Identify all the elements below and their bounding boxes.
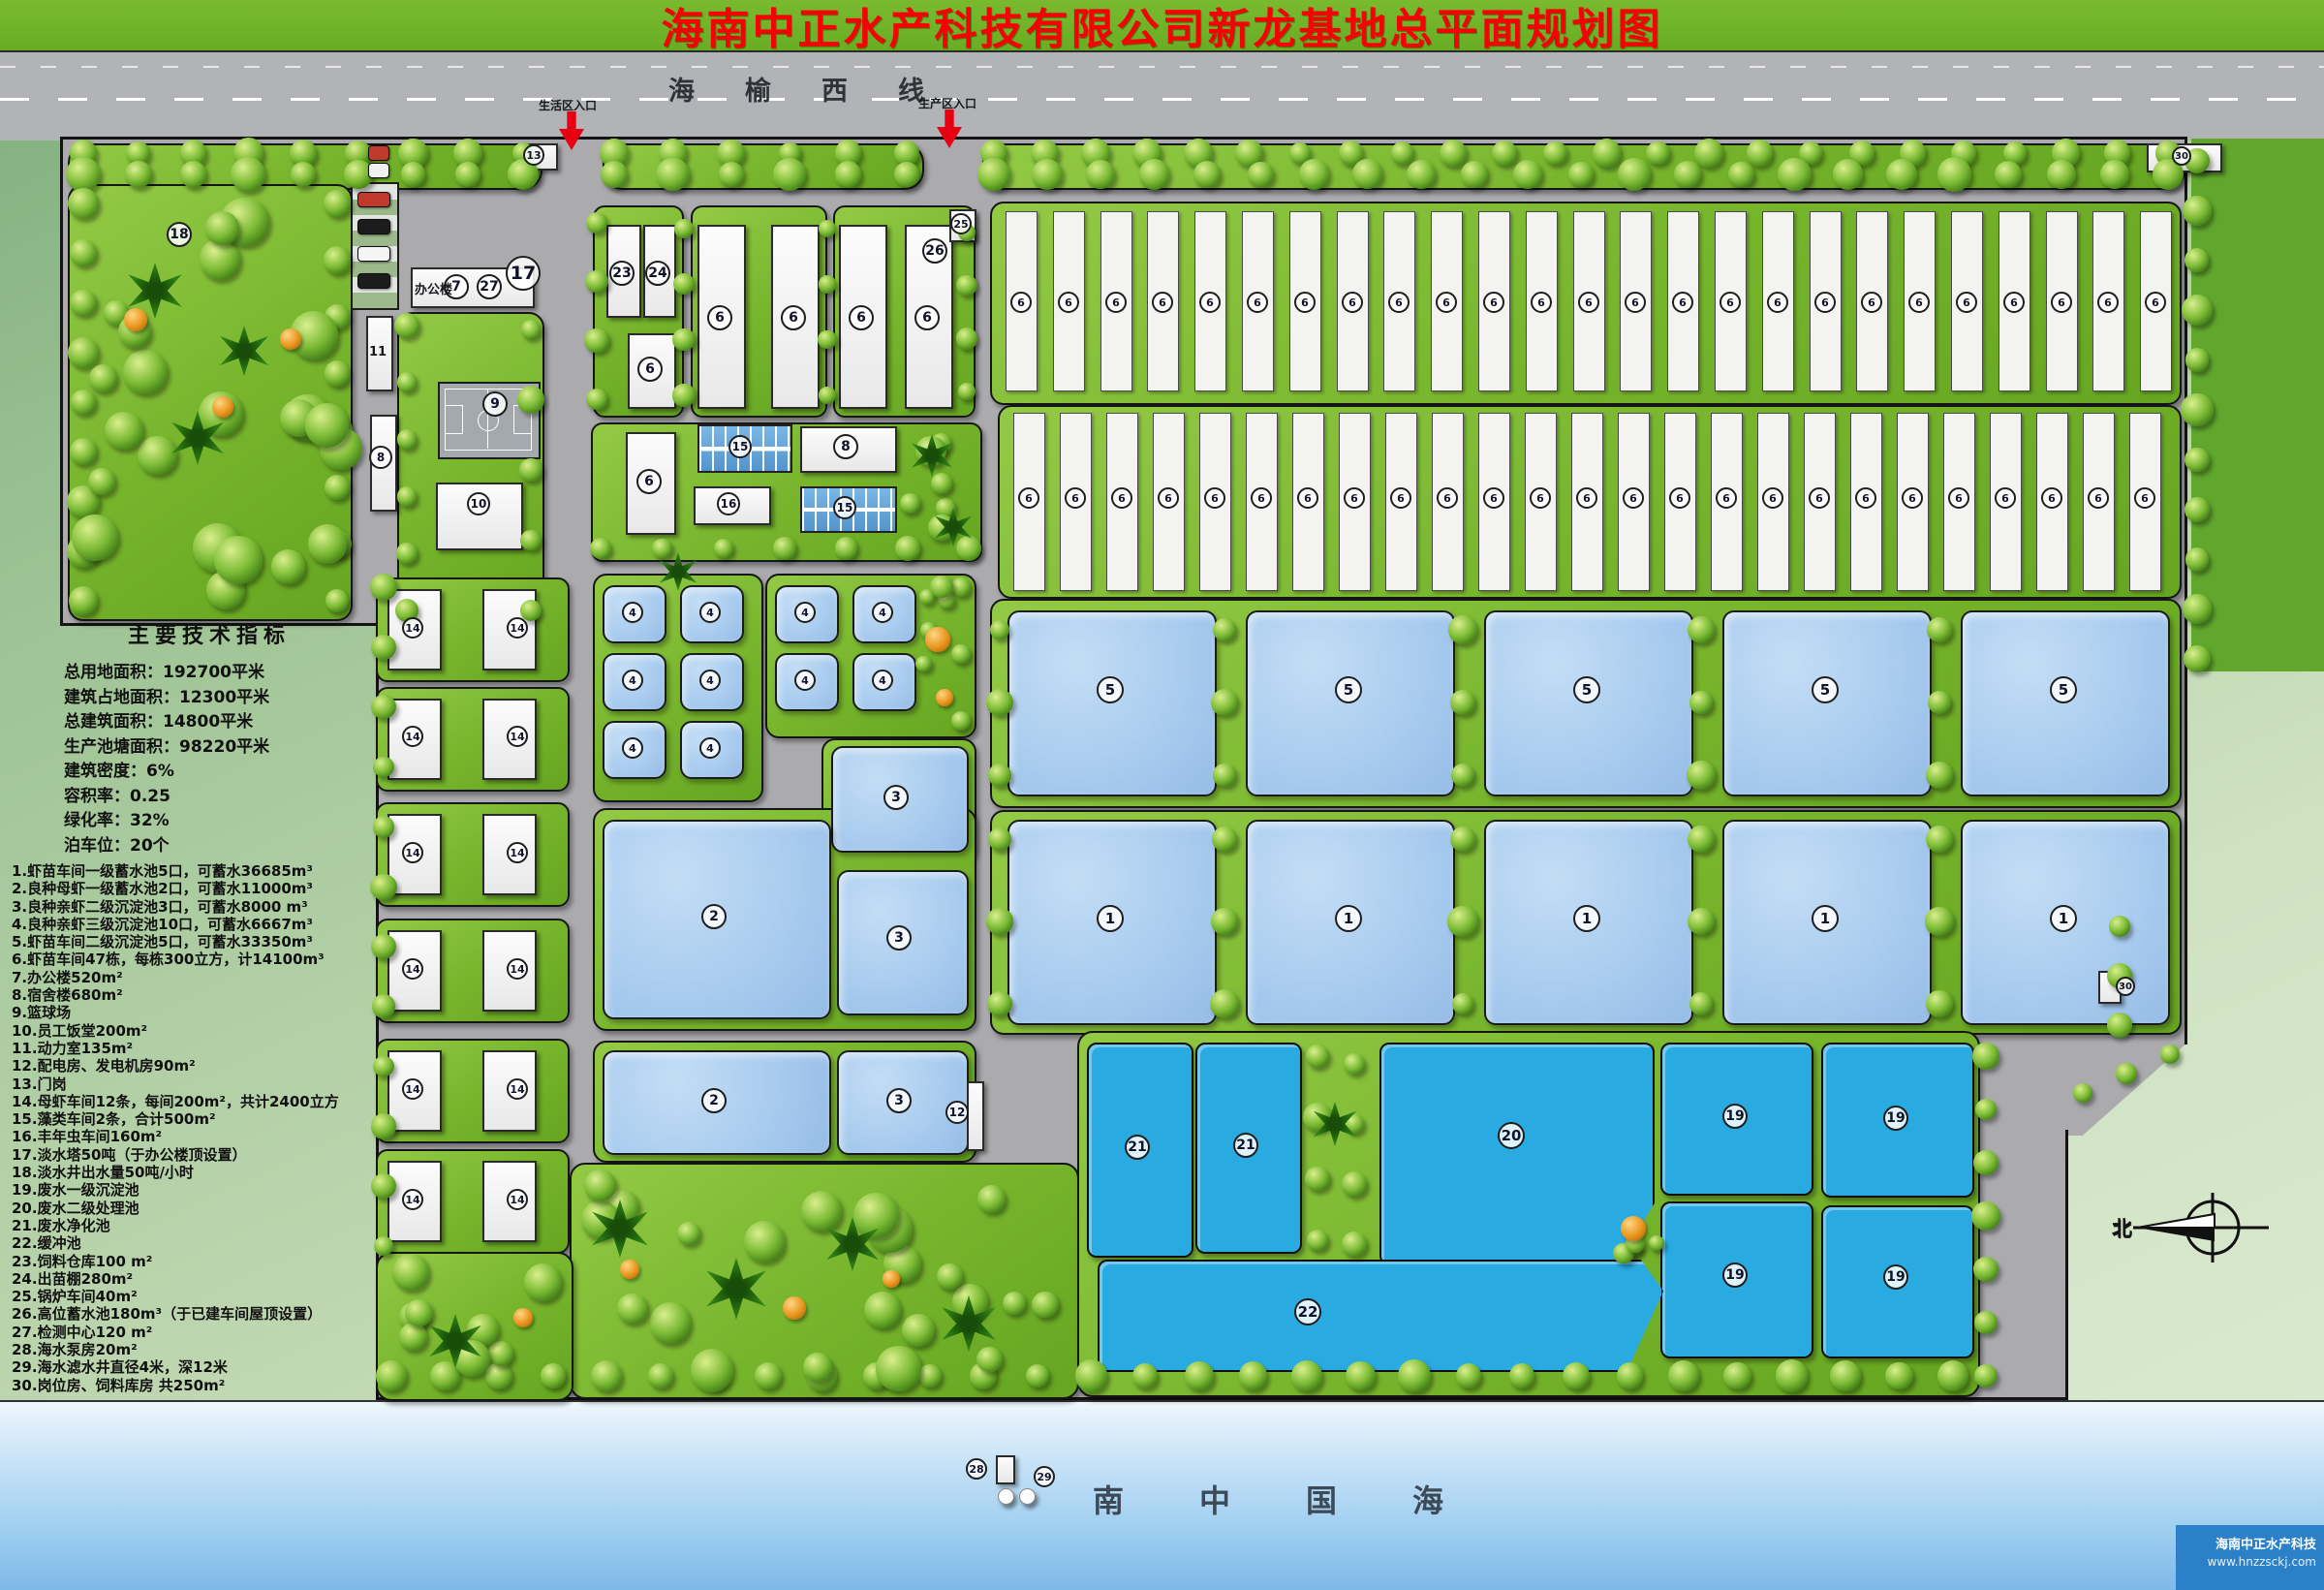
tree-icon: [1830, 1360, 1860, 1390]
tree-icon: [586, 389, 607, 410]
tree-icon: [819, 387, 835, 403]
tree-icon: [591, 1360, 622, 1391]
badge-6: 6: [1152, 292, 1173, 313]
badge-6: 6: [1995, 487, 2016, 509]
tree-icon: [1995, 161, 2022, 188]
badge-6: 6: [1576, 487, 1597, 509]
badge-6: 6: [2097, 292, 2119, 313]
road-center-line: [0, 98, 2324, 101]
indicator-line: 容积率：0.25: [64, 785, 355, 810]
badge-6: 6: [1111, 487, 1132, 509]
tree-icon: [1674, 161, 1701, 188]
legend-item: 21.废水净化池: [12, 1217, 382, 1234]
living-entrance-label: 生活区入口: [539, 97, 597, 113]
legend-item: 13.门岗: [12, 1076, 382, 1093]
tree-icon: [308, 524, 347, 563]
badge-6: 6: [1720, 292, 1741, 313]
tree-icon: [524, 1263, 562, 1301]
tree-icon: [900, 493, 920, 514]
tree-icon: [1975, 1099, 1997, 1120]
office-label: 办公楼: [415, 279, 473, 295]
legend-item: 2.良种母虾一级蓄水池2口，可蓄水11000m³: [12, 880, 382, 897]
site-boundary: [2065, 1130, 2068, 1400]
badge-10: 10: [467, 492, 490, 515]
compass-north-label: 北: [2113, 1214, 2132, 1242]
tree-icon: [773, 158, 806, 191]
tree-icon: [1668, 1360, 1699, 1391]
tree-icon: [138, 436, 176, 475]
tree-icon: [1032, 1292, 1059, 1319]
badge-1: 1: [1335, 905, 1362, 932]
badge-6: 6: [1251, 487, 1272, 509]
tree-icon: [1211, 908, 1237, 934]
badge-6: 6: [637, 357, 663, 382]
tree-icon: [650, 1302, 692, 1344]
tree-icon: [584, 328, 609, 354]
badge-14: 14: [507, 842, 528, 863]
tree-icon: [819, 275, 837, 294]
badge-24: 24: [645, 261, 670, 286]
tree-icon: [1213, 764, 1235, 786]
badge-14: 14: [402, 842, 423, 863]
badge-6: 6: [1861, 292, 1882, 313]
tree-icon: [835, 161, 861, 187]
tree-icon: [876, 1346, 921, 1391]
tree-icon: [1448, 615, 1477, 644]
shrub-icon: [620, 1260, 639, 1279]
badge-3: 3: [886, 1088, 912, 1113]
badge-6: 6: [1247, 292, 1268, 313]
indicators-lines: 总用地面积：192700平米建筑占地面积：12300平米总建筑面积：14800平…: [64, 661, 355, 858]
badge-6: 6: [1294, 292, 1316, 313]
pond-5: [1484, 610, 1693, 796]
indicator-line: 泊车位：20个: [64, 834, 355, 859]
green-island: [603, 143, 924, 190]
legend-item: 12.配电房、发电机房90m²: [12, 1057, 382, 1075]
tree-icon: [520, 530, 542, 551]
tree-icon: [123, 350, 168, 394]
tree-icon: [1032, 159, 1063, 190]
tree-icon: [1723, 1362, 1751, 1390]
tree-icon: [325, 360, 351, 387]
tree-icon: [125, 161, 152, 188]
badge-6: 6: [1058, 292, 1079, 313]
tree-icon: [1689, 691, 1712, 713]
badge-6: 6: [1948, 487, 1969, 509]
badge-2: 2: [701, 1088, 727, 1113]
tree-icon: [392, 1254, 428, 1290]
badge-29: 29: [1034, 1466, 1055, 1487]
tree-icon: [305, 403, 349, 447]
tree-icon: [1185, 1361, 1213, 1389]
badge-6: 6: [1623, 487, 1644, 509]
badge-5: 5: [2050, 676, 2077, 703]
tree-icon: [672, 328, 695, 351]
legend-item: 4.良种亲虾三级沉淀池10口，可蓄水6667m³: [12, 916, 382, 933]
tree-icon: [1689, 992, 1713, 1015]
well-29-icon: [998, 1488, 1014, 1505]
badge-6: 6: [1483, 292, 1504, 313]
badge-4: 4: [699, 670, 721, 691]
badge-13: 13: [523, 144, 544, 166]
tree-icon: [1593, 139, 1621, 167]
tree-icon: [205, 211, 239, 245]
gate-barrier-icon: [368, 163, 389, 178]
indicator-line: 总建筑面积：14800平米: [64, 710, 355, 735]
tree-icon: [1450, 690, 1474, 714]
tree-icon: [584, 1169, 616, 1201]
badge-16: 16: [717, 492, 740, 515]
tree-icon: [371, 695, 395, 719]
tree-icon: [1075, 1359, 1108, 1392]
tree-icon: [89, 364, 117, 392]
tree-icon: [956, 275, 977, 296]
badge-14: 14: [402, 617, 423, 639]
tree-icon: [986, 908, 1012, 934]
tree-icon: [405, 1299, 433, 1327]
badge-6: 6: [1531, 292, 1552, 313]
tree-icon: [519, 458, 542, 481]
badge-4: 4: [794, 670, 816, 691]
tree-icon: [986, 689, 1013, 716]
shrub-icon: [124, 308, 147, 331]
tree-icon: [1688, 826, 1714, 852]
tree-icon: [1687, 761, 1716, 790]
tree-icon: [1973, 1150, 1999, 1175]
tree-icon: [70, 290, 97, 317]
badge-6: 6: [1388, 292, 1410, 313]
badge-25: 25: [950, 213, 972, 234]
badge-6: 6: [707, 305, 732, 330]
tree-icon: [371, 635, 396, 660]
indicators-title: 主要技术指标: [64, 618, 355, 649]
tree-icon: [864, 1292, 901, 1328]
tree-icon: [586, 212, 607, 234]
highway: [0, 50, 2324, 140]
tree-icon: [2184, 645, 2211, 672]
tree-icon: [1728, 162, 1754, 188]
badge-6: 6: [1672, 292, 1693, 313]
tree-icon: [894, 162, 919, 187]
tree-icon: [674, 219, 693, 237]
tree-icon: [1974, 1311, 1998, 1334]
tree-icon: [652, 539, 672, 559]
tree-icon: [1618, 158, 1651, 191]
building-12-generator: [967, 1081, 984, 1151]
tree-icon: [1450, 826, 1475, 852]
tree-icon: [1306, 1044, 1329, 1068]
badge-14: 14: [507, 617, 528, 639]
building-11-label: 11: [368, 345, 387, 360]
tree-icon: [394, 313, 419, 338]
page-title: 海南中正水产科技有限公司新龙基地总平面规划图: [662, 0, 1663, 56]
tree-icon: [2183, 594, 2213, 624]
pond-22: [1098, 1260, 1663, 1372]
badge-6: 6: [1814, 292, 1836, 313]
badge-4: 4: [699, 602, 721, 623]
technical-indicators-panel: 主要技术指标 总用地面积：192700平米建筑占地面积：12300平米总建筑面积…: [64, 618, 355, 858]
tree-icon: [1694, 139, 1723, 168]
tree-icon: [656, 158, 690, 192]
court-marking: [445, 405, 463, 434]
tree-icon: [401, 162, 426, 187]
legend-item: 11.动力室135m²: [12, 1040, 382, 1057]
badge-6: 6: [914, 305, 940, 330]
legend-item: 10.员工饭堂200m²: [12, 1022, 382, 1040]
tree-icon: [1778, 158, 1811, 191]
sea-name: 南中国海: [1093, 1477, 1519, 1521]
tree-icon: [902, 1314, 935, 1347]
tree-icon: [517, 386, 545, 414]
tree-icon: [1937, 157, 1971, 191]
tree-icon: [915, 656, 932, 672]
badge-1: 1: [2050, 905, 2077, 932]
legend-item: 25.锅炉车间40m²: [12, 1288, 382, 1305]
shrub-icon: [513, 1308, 533, 1327]
legend-item: 15.藻类车间2条，合计500m²: [12, 1110, 382, 1128]
tree-icon: [66, 157, 101, 192]
shrub-icon: [925, 627, 949, 651]
tree-icon: [1398, 1359, 1430, 1391]
tree-icon: [744, 1221, 785, 1262]
tree-icon: [1973, 1257, 1999, 1282]
legend-item: 29.海水滤水井直径4米，深12米: [12, 1358, 382, 1376]
compass-icon: 北: [2112, 1187, 2277, 1268]
tree-icon: [977, 158, 1009, 190]
tree-icon: [88, 468, 115, 495]
badge-6: 6: [1342, 292, 1363, 313]
tree-icon: [397, 486, 417, 506]
tree-icon: [396, 543, 417, 563]
badge-23: 23: [609, 261, 635, 286]
site-plan: 海南中正水产科技有限公司新龙基地总平面规划图 海榆西线 生活区入口 生产区入口 …: [0, 0, 2324, 1590]
tree-icon: [1456, 1363, 1481, 1388]
pond-5: [1007, 610, 1217, 796]
tree-icon: [988, 827, 1011, 851]
badge-6: 6: [2051, 292, 2072, 313]
tree-icon: [180, 161, 207, 188]
legend-item: 17.淡水塔50吨（于办公楼顶设置）: [12, 1146, 382, 1164]
title-banner: 海南中正水产科技有限公司新龙基地总平面规划图: [0, 0, 2324, 50]
tree-icon: [1211, 689, 1238, 716]
legend-item: 20.废水二级处理池: [12, 1200, 382, 1217]
legend-item: 6.虾苗车间47栋，每栋300立方，计14100m³: [12, 951, 382, 968]
badge-6: 6: [1010, 292, 1032, 313]
tree-icon: [231, 157, 265, 192]
badge-4: 4: [872, 670, 893, 691]
badge-26: 26: [922, 238, 947, 264]
tree-icon: [2100, 160, 2129, 189]
tree-icon: [2047, 160, 2077, 190]
tree-icon: [68, 337, 99, 368]
watermark-website: www.hnzzsckj.com: [2176, 1555, 2316, 1569]
badge-8: 8: [369, 446, 392, 469]
tree-icon: [1833, 159, 1864, 190]
badge-4: 4: [699, 737, 721, 759]
tree-icon: [1407, 160, 1436, 189]
pond-20: [1379, 1043, 1655, 1265]
badge-6: 6: [1855, 487, 1876, 509]
badge-6: 6: [1767, 292, 1788, 313]
tree-icon: [1139, 159, 1170, 190]
badge-6: 6: [2088, 487, 2109, 509]
tree-icon: [1926, 762, 1953, 789]
badge-6: 6: [781, 305, 806, 330]
tree-icon: [601, 161, 628, 188]
badge-6: 6: [1199, 292, 1221, 313]
tree-icon: [818, 330, 836, 349]
legend-item: 28.海水泵房20m²: [12, 1341, 382, 1358]
indicator-line: 总用地面积：192700平米: [64, 661, 355, 686]
badge-6: 6: [1344, 487, 1365, 509]
legend-item: 1.虾苗车间一级蓄水池5口，可蓄水36685m³: [12, 862, 382, 880]
tree-icon: [2073, 1083, 2092, 1103]
badge-6: 6: [1065, 487, 1086, 509]
badge-14: 14: [507, 726, 528, 747]
tree-icon: [373, 816, 395, 838]
tree-icon: [1776, 1359, 1808, 1391]
tree-icon: [1926, 990, 1952, 1016]
tree-icon: [918, 1364, 942, 1387]
tree-icon: [271, 549, 305, 583]
tree-icon: [373, 757, 394, 778]
tree-icon: [1747, 140, 1773, 166]
badge-6: 6: [2145, 292, 2166, 313]
tree-icon: [324, 246, 352, 274]
car-icon: [357, 192, 390, 207]
badge-6: 6: [1578, 292, 1599, 313]
tree-icon: [541, 1363, 566, 1388]
tree-icon: [1971, 1201, 2000, 1231]
tree-icon: [2181, 393, 2214, 426]
badge-14: 14: [402, 1078, 423, 1100]
badge-1: 1: [1573, 905, 1600, 932]
badge-2: 2: [701, 904, 727, 929]
road-edge-line: [0, 66, 2324, 68]
legend-item: 27.检测中心120 m²: [12, 1324, 382, 1341]
badge-4: 4: [622, 602, 643, 623]
site-boundary: [60, 137, 63, 626]
badge-6: 6: [1956, 292, 1977, 313]
badge-27: 27: [477, 274, 502, 299]
tree-icon: [1346, 1361, 1376, 1391]
tree-icon: [1305, 1167, 1329, 1191]
shrub-icon: [883, 1270, 899, 1287]
tree-icon: [585, 270, 607, 293]
shrub-icon: [783, 1296, 806, 1320]
badge-22: 22: [1294, 1298, 1321, 1325]
badge-5: 5: [1335, 676, 1362, 703]
tree-icon: [324, 190, 350, 216]
legend-item: 30.岗位房、饲料库房 共250m²: [12, 1377, 382, 1394]
badge-20: 20: [1498, 1122, 1525, 1149]
badge-21: 21: [1233, 1133, 1258, 1158]
car-icon: [357, 219, 390, 234]
badge-6: 6: [1204, 487, 1225, 509]
gate-barrier-icon: [368, 145, 389, 161]
legend-item: 24.出苗棚280m²: [12, 1270, 382, 1288]
tree-icon: [399, 1323, 427, 1351]
badge-19: 19: [1722, 1263, 1748, 1288]
tree-icon: [70, 239, 97, 266]
tree-icon: [853, 1193, 899, 1238]
tree-icon: [488, 1341, 513, 1366]
tree-icon: [1447, 906, 1477, 936]
tree-icon: [977, 1185, 1006, 1213]
legend-item: 3.良种亲虾二级沉淀池3口，可蓄水8000 m³: [12, 898, 382, 916]
tree-icon: [2160, 1044, 2180, 1064]
tree-icon: [1461, 161, 1489, 189]
badge-15: 15: [728, 435, 752, 458]
badge-6: 6: [1483, 487, 1504, 509]
badge-19: 19: [1883, 1106, 1908, 1131]
indicator-line: 建筑占地面积：12300平米: [64, 686, 355, 711]
tree-icon: [937, 1263, 963, 1290]
tree-icon: [1927, 617, 1951, 641]
badge-30: 30: [2172, 146, 2191, 166]
badge-6: 6: [1158, 487, 1179, 509]
badge-6: 6: [1436, 292, 1457, 313]
production-entrance-label: 生产区入口: [918, 95, 976, 111]
tree-icon: [819, 220, 836, 237]
indicator-line: 绿化率：32%: [64, 809, 355, 834]
badge-30: 30: [2116, 977, 2135, 996]
shrub-icon: [1621, 1216, 1646, 1241]
badge-6: 6: [849, 305, 874, 330]
badge-19: 19: [1722, 1104, 1748, 1129]
badge-17: 17: [506, 256, 541, 291]
tree-icon: [1299, 159, 1330, 190]
legend-item: 14.母虾车间12条，每间200m²，共计2400立方: [12, 1093, 382, 1110]
tree-icon: [2185, 448, 2209, 472]
tree-icon: [617, 1294, 648, 1325]
badge-5: 5: [1097, 676, 1124, 703]
tree-icon: [69, 586, 98, 615]
badge-4: 4: [622, 670, 643, 691]
badge-6: 6: [1762, 487, 1783, 509]
tree-icon: [976, 1347, 1002, 1372]
site-boundary: [60, 137, 2187, 140]
tree-icon: [1391, 141, 1413, 164]
badge-14: 14: [402, 1189, 423, 1210]
tree-icon: [2185, 547, 2210, 572]
tree-icon: [520, 600, 542, 621]
pond-5: [1722, 610, 1932, 796]
badge-6: 6: [1297, 487, 1318, 509]
badge-6: 6: [1437, 487, 1458, 509]
tree-icon: [672, 384, 695, 406]
car-icon: [357, 246, 390, 262]
tree-icon: [291, 162, 316, 187]
badge-6: 6: [2003, 292, 2025, 313]
badge-6: 6: [1105, 292, 1127, 313]
tree-icon: [691, 1349, 734, 1392]
tree-icon: [930, 576, 952, 598]
building-28-pump: [996, 1455, 1015, 1484]
tree-icon: [956, 536, 981, 561]
badge-21: 21: [1125, 1135, 1150, 1160]
badge-8: 8: [833, 434, 858, 459]
tree-icon: [714, 539, 733, 558]
badge-6: 6: [2041, 487, 2062, 509]
badge-19: 19: [1883, 1264, 1908, 1290]
well-29-icon: [1019, 1488, 1036, 1505]
badge-4: 4: [794, 602, 816, 623]
tree-icon: [1885, 1362, 1913, 1390]
legend-item: 18.淡水井出水量50吨/小时: [12, 1164, 382, 1181]
legend-item: 7.办公楼520m²: [12, 969, 382, 986]
legend-item: 23.饲料仓库100 m²: [12, 1253, 382, 1270]
